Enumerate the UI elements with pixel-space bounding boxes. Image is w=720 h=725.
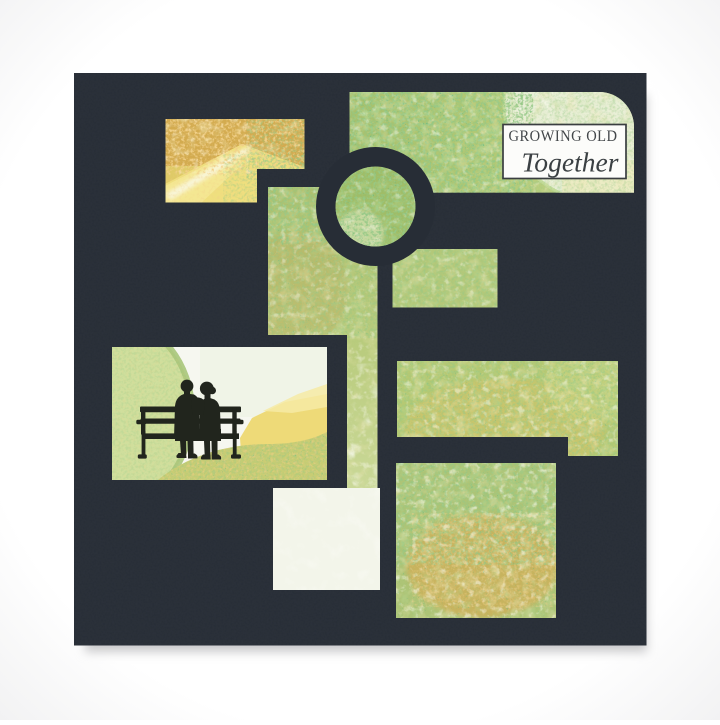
svg-text:GROWING OLD: GROWING OLD [509, 128, 618, 145]
svg-text:Together: Together [522, 147, 619, 178]
